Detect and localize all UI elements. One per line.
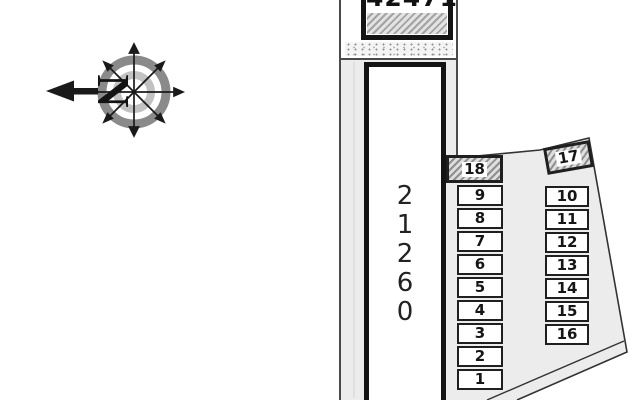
north-label: N — [88, 74, 139, 107]
parking-site-plan: N 42471 2 1 2 6 0 18 9 8 7 6 5 4 3 2 1 1… — [0, 0, 640, 400]
parking-space-2: 2 — [457, 346, 503, 367]
stippled-ground-texture — [345, 42, 453, 56]
parking-space-1: 1 — [457, 369, 503, 390]
parking-space-14: 14 — [545, 278, 589, 299]
parking-space-11: 11 — [545, 209, 589, 230]
parking-space-15: 15 — [545, 301, 589, 322]
space-number: 17 — [555, 148, 582, 167]
building-number-21260: 2 1 2 6 0 — [369, 182, 441, 327]
parking-space-10: 10 — [545, 186, 589, 207]
parking-space-18: 18 — [446, 155, 503, 183]
building-21260: 2 1 2 6 0 — [364, 62, 446, 400]
parking-space-4: 4 — [457, 300, 503, 321]
building-42471-roof-hatch — [367, 13, 447, 34]
compass-rose: N — [38, 33, 190, 151]
parking-space-8: 8 — [457, 208, 503, 229]
parking-space-3: 3 — [457, 323, 503, 344]
parking-space-5: 5 — [457, 277, 503, 298]
parking-space-16: 16 — [545, 324, 589, 345]
building-number-42471: 42471 — [366, 0, 448, 13]
parking-space-12: 12 — [545, 232, 589, 253]
parking-space-6: 6 — [457, 254, 503, 275]
parking-space-13: 13 — [545, 255, 589, 276]
parking-space-7: 7 — [457, 231, 503, 252]
building-42471: 42471 — [361, 0, 453, 40]
space-number: 18 — [462, 162, 487, 177]
parking-space-9: 9 — [457, 185, 503, 206]
